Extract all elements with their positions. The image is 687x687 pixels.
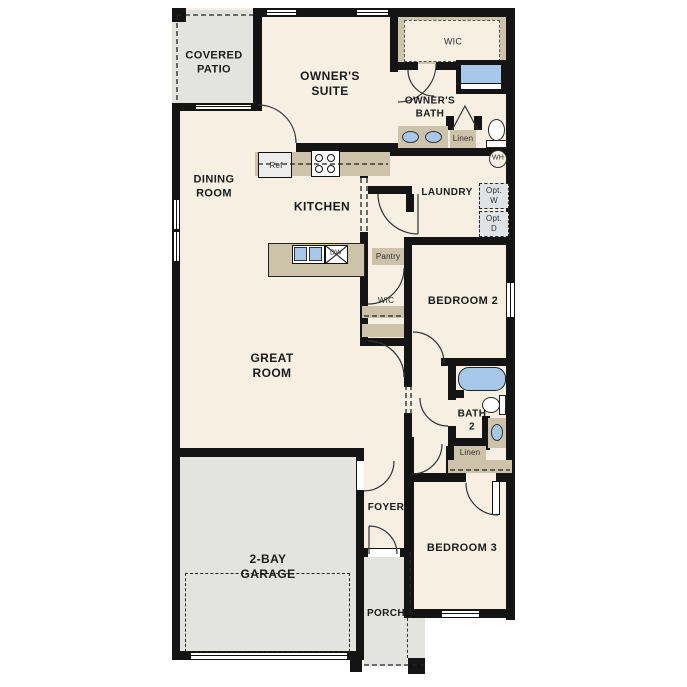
label-wic-bedroom2: WIC [378,296,394,306]
window-bedroom2-line [510,282,511,318]
label-covered-patio: COVERED PATIO [185,49,242,77]
bath2-sink [491,424,503,441]
patio-slider-door [195,104,252,110]
bedroom3-closet-shelf [448,460,512,473]
kitchen-sink-basin-right [309,247,322,261]
garage-door-line [190,655,348,656]
label-pantry: Pantry [376,252,400,262]
toilet-bath2-tank [499,395,506,415]
wall-suite-wic [390,16,398,72]
patio-corner-block [172,8,186,22]
porch-slab-extension [407,618,425,658]
wall-linen1-post-right [474,116,482,130]
toilet-owners-bath-bowl [488,119,505,141]
label-kitchen: KITCHEN [294,200,350,215]
wall-hall-laundry [368,186,412,194]
label-linen-owner: Linen [453,134,474,144]
label-porch: PORCH [367,608,405,621]
wall-linen2-top [448,438,490,446]
porch-corner-block-right [408,658,425,674]
coat-closet-shelf [362,324,404,337]
garage-foyer-opening [357,461,364,490]
kitchen-sink-basin-left [294,247,307,261]
window-owners-suite-2-line [356,12,389,13]
front-door-opening [368,549,400,557]
window-bedroom3-line [441,613,480,614]
label-great-room: GREAT ROOM [250,351,293,381]
wall-tub-lip [448,390,464,398]
stove-burner [327,154,335,162]
patio-slider-line [195,106,252,107]
bedroom3-door-leaf [492,481,500,515]
label-laundry: LAUNDRY [421,187,472,200]
label-refrigerator: Ref [269,161,282,171]
label-dishwasher: DW [330,250,342,259]
wic2-shelf [362,306,404,318]
window-owners-suite-1-line [266,12,297,13]
shower-owners-bath [461,65,501,83]
garage-door-opening [190,652,348,660]
owners-sink-right [425,131,442,143]
floor-plan: COVERED PATIO OWNER'S SUITE WIC OWNER'S … [0,0,687,687]
stove-burner [327,165,335,173]
wall-hall-upper [404,363,412,387]
wall-wic-bottom-left [398,62,418,70]
wall-bedroom2-left [404,245,412,363]
stove-burner [315,154,323,162]
toilet-owners-bath-tank [486,140,507,148]
wall-laundry-post [406,194,414,212]
label-bedroom-3: BEDROOM 3 [427,542,497,556]
window-dining-2-line [176,231,177,262]
shower-glass [461,84,501,89]
label-owners-suite: OWNER'S SUITE [300,69,360,99]
label-owners-wic: WIC [444,36,462,47]
label-dining-room: DINING ROOM [194,173,235,201]
label-linen-hall: Linen [460,448,481,458]
garage-parking-outline [185,573,350,652]
wall-wic-bottom-right [436,62,458,70]
label-bedroom-2: BEDROOM 2 [428,295,498,309]
wall-suite-left [253,8,262,110]
label-foyer: FOYER [368,502,404,515]
tub-bath2 [458,367,506,391]
wall-bedroom2-top [404,237,515,245]
label-owners-bath: OWNER'S BATH [405,96,455,121]
window-bedroom3 [441,610,480,618]
wall-foyer-right [404,437,414,618]
label-opt-washer: Opt. W [486,186,502,206]
porch-corner-block-left [350,658,362,672]
wall-garage-top [172,448,364,457]
wall-hall-lower [404,413,412,439]
label-opt-dryer: Opt. D [486,214,502,234]
owners-sink-left [402,131,419,143]
wall-left-exterior [172,103,180,660]
label-water-heater: WH [492,155,504,164]
stove-burner [315,165,323,173]
wall-bedroom3-top-left [404,473,466,482]
label-bath-2: BATH 2 [458,409,487,434]
label-garage: 2-BAY GARAGE [240,552,295,582]
window-dining-1-line [176,199,177,230]
